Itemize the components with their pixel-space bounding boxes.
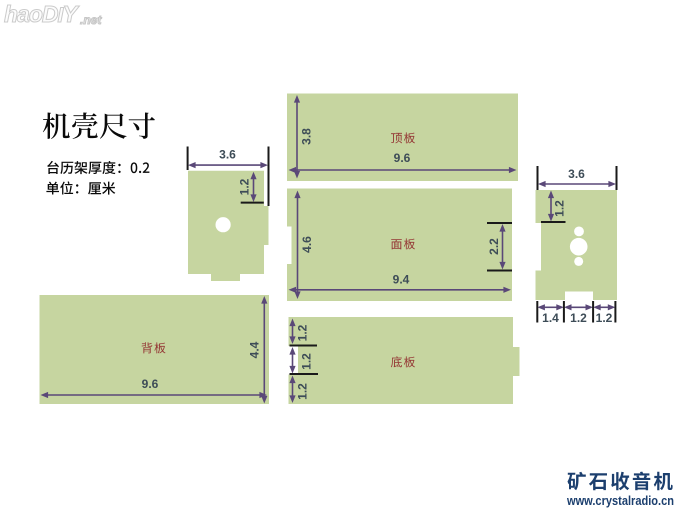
svg-text:1.2: 1.2 (570, 311, 587, 325)
svg-text:www.crystalradio.cn: www.crystalradio.cn (566, 494, 674, 508)
svg-text:9.4: 9.4 (393, 273, 410, 287)
svg-text:9.6: 9.6 (142, 377, 159, 391)
svg-text:haoDIY: haoDIY (4, 1, 80, 27)
svg-text:3.6: 3.6 (219, 148, 236, 162)
svg-text:1.4: 1.4 (542, 311, 559, 325)
svg-text:2.2: 2.2 (487, 238, 501, 255)
svg-text:9.6: 9.6 (394, 151, 411, 165)
svg-text:1.2: 1.2 (596, 311, 613, 325)
svg-text:3.8: 3.8 (300, 128, 314, 145)
svg-text:1.2: 1.2 (300, 353, 314, 370)
svg-text:.net: .net (80, 13, 102, 27)
svg-text:1.2: 1.2 (296, 324, 310, 341)
svg-text:4.6: 4.6 (300, 236, 314, 253)
svg-text:1.2: 1.2 (553, 200, 567, 217)
svg-text:3.6: 3.6 (568, 167, 585, 181)
svg-text:1.2: 1.2 (238, 178, 252, 195)
svg-text:4.4: 4.4 (248, 341, 262, 358)
svg-text:1.2: 1.2 (296, 383, 310, 400)
